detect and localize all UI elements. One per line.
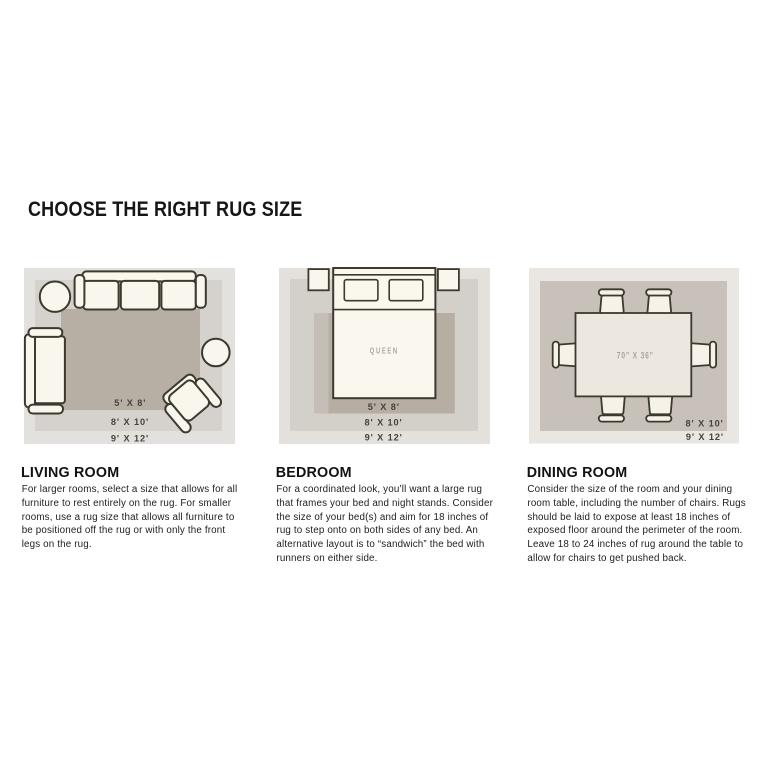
svg-text:5' X 8': 5' X 8' [114, 398, 146, 408]
svg-text:QUEEN: QUEEN [370, 345, 399, 355]
svg-text:9' X 12': 9' X 12' [111, 434, 149, 444]
svg-text:9' X 12': 9' X 12' [686, 432, 724, 442]
svg-text:5' X 8': 5' X 8' [368, 402, 400, 412]
svg-text:70” X 36”: 70” X 36” [617, 351, 654, 362]
svg-text:8' X 10': 8' X 10' [686, 419, 724, 429]
svg-text:9' X 12': 9' X 12' [365, 433, 403, 443]
svg-text:8' X 10': 8' X 10' [365, 418, 403, 428]
svg-text:8' X 10': 8' X 10' [111, 417, 149, 427]
